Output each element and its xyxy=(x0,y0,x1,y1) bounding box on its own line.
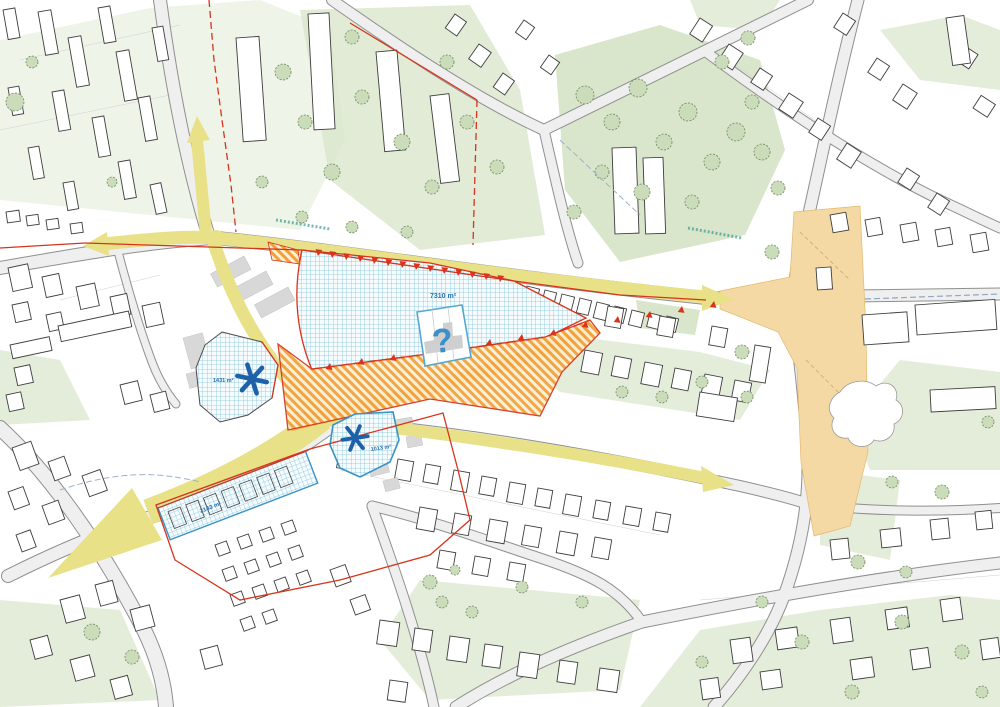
plan-map: 2143 m² ? xyxy=(0,0,1000,707)
area-label-west: 1431 m² xyxy=(213,377,234,384)
question-mark: ? xyxy=(430,321,455,361)
map-canvas: 2143 m² ? xyxy=(0,0,1000,707)
area-label-main: 7310 m² xyxy=(430,293,457,300)
